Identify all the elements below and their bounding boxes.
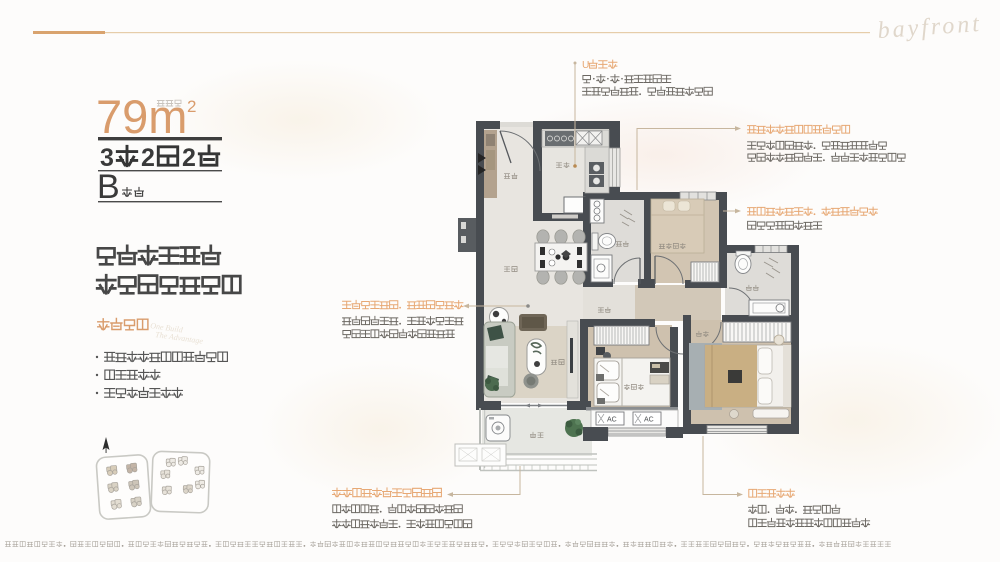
svg-text:U: U (582, 60, 589, 71)
svg-text:AC: AC (607, 417, 617, 424)
svg-text:79m: 79m (96, 90, 187, 143)
svg-text:2: 2 (182, 144, 196, 172)
svg-text:2: 2 (187, 97, 196, 116)
svg-text:B: B (97, 168, 120, 206)
svg-text:AC: AC (644, 417, 654, 424)
svg-text:2: 2 (141, 144, 155, 172)
